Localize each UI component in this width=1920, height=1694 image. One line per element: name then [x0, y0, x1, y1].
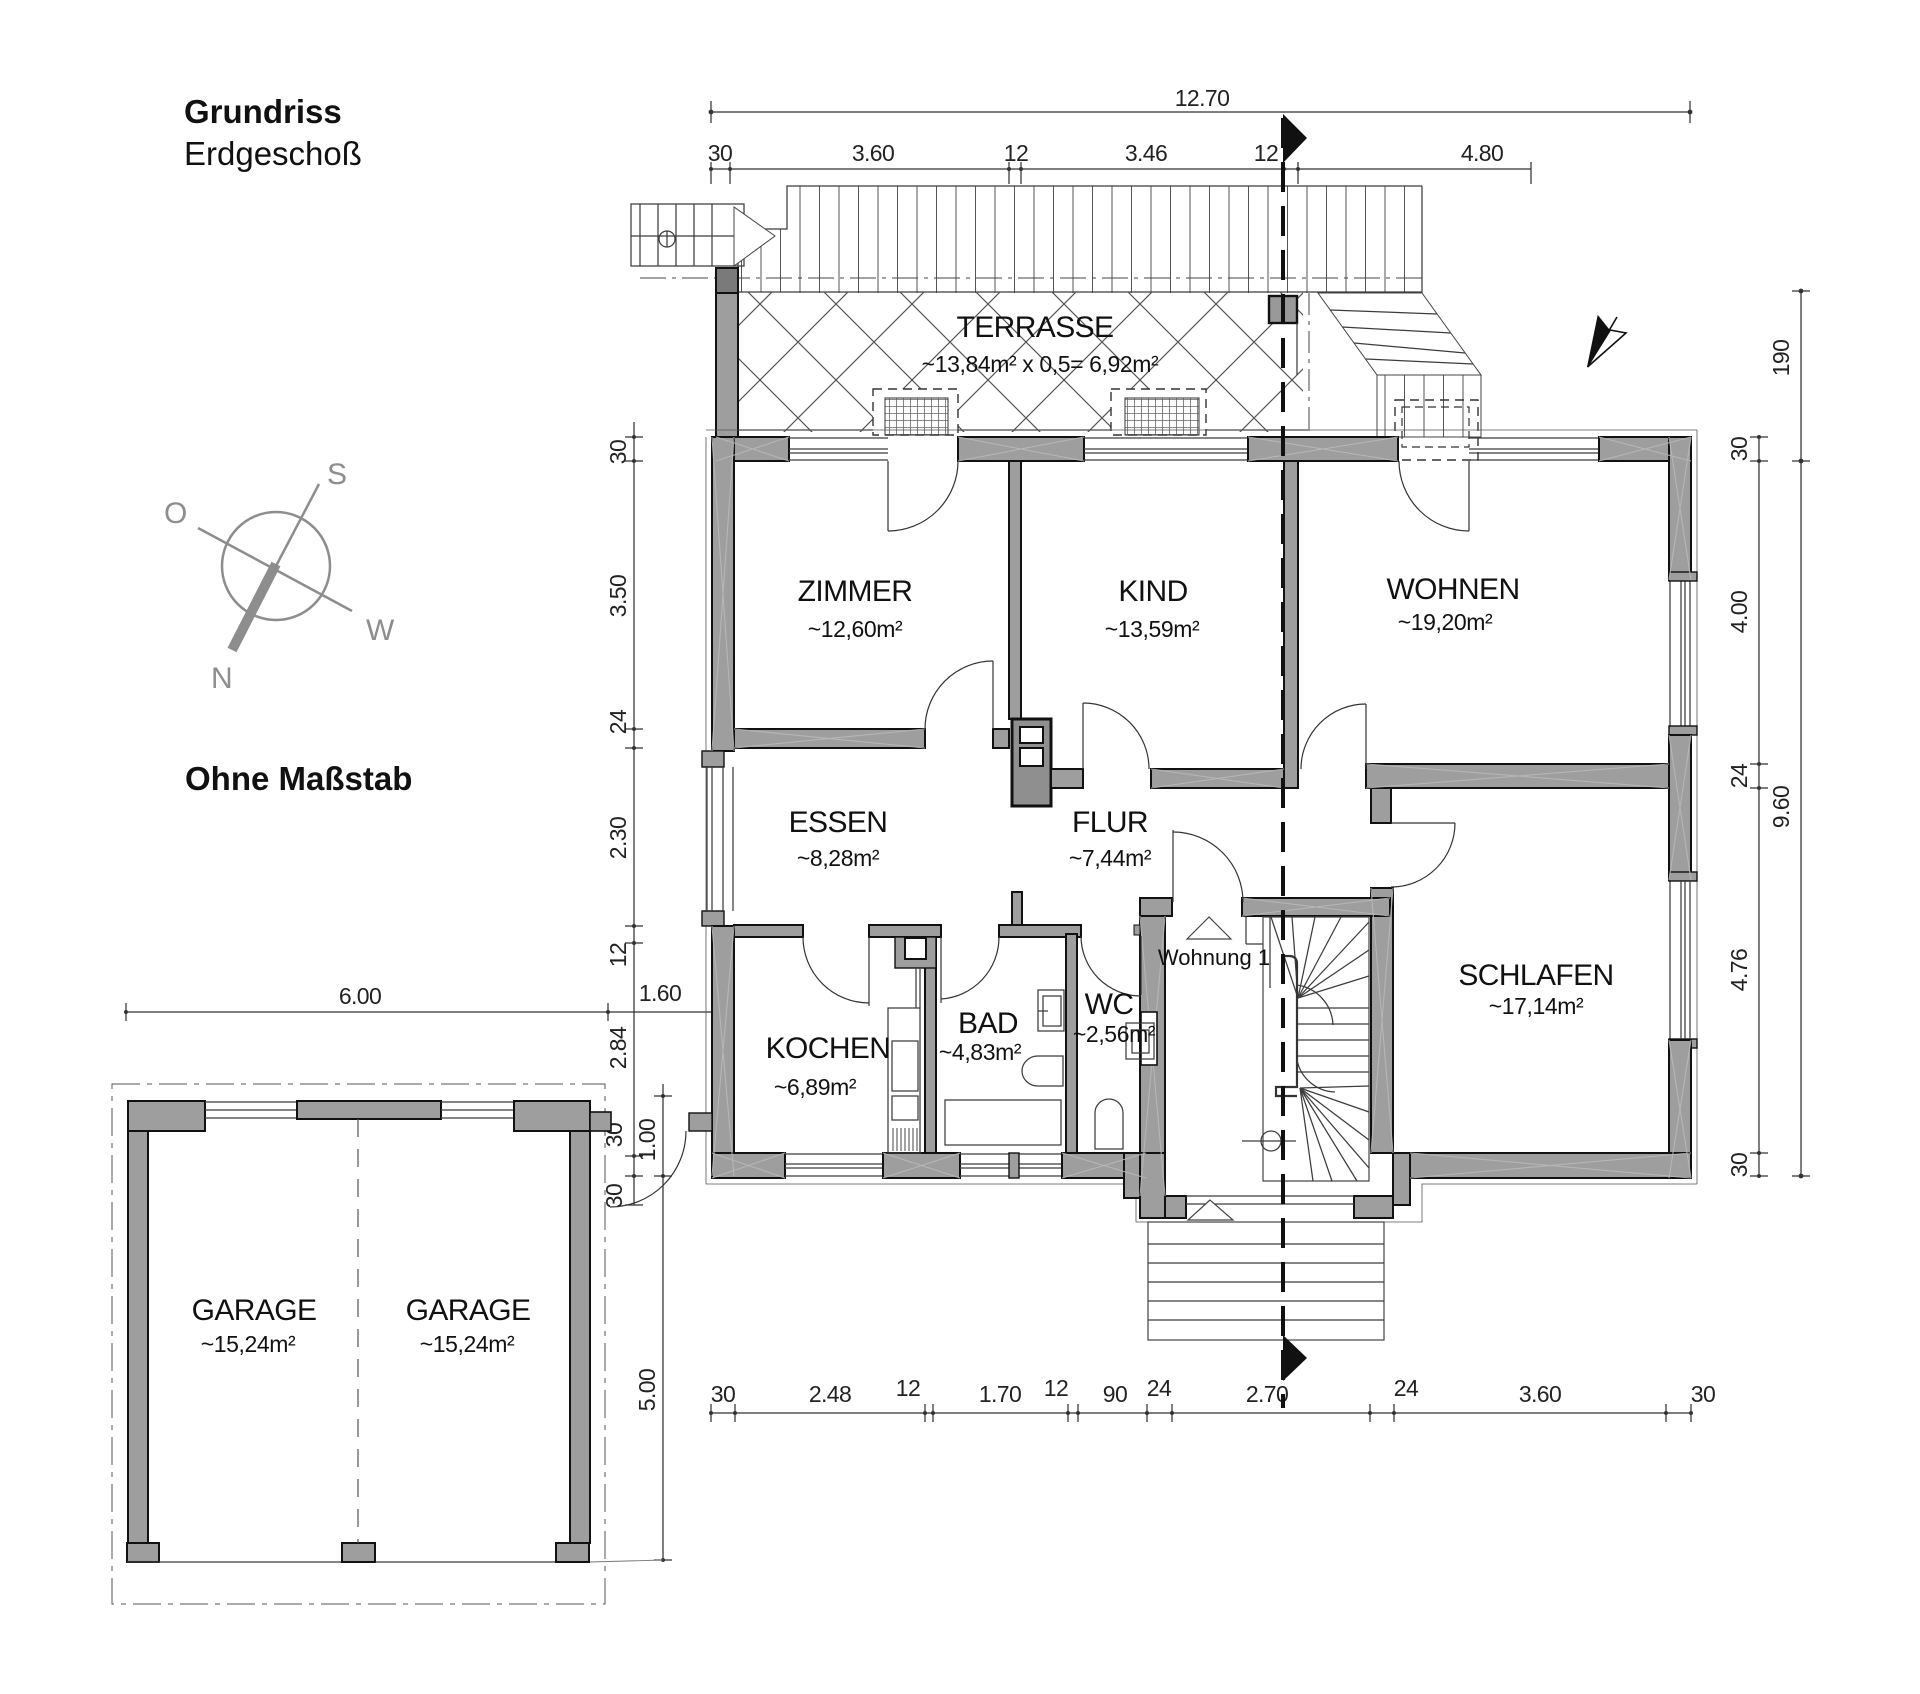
svg-text:30: 30 — [605, 440, 631, 464]
svg-text:~6,89m²: ~6,89m² — [774, 1074, 857, 1100]
svg-text:3.60: 3.60 — [1519, 1381, 1561, 1407]
svg-text:4.76: 4.76 — [1726, 949, 1752, 991]
svg-text:12: 12 — [1254, 140, 1278, 166]
svg-text:1.70: 1.70 — [979, 1381, 1021, 1407]
svg-text:5.00: 5.00 — [634, 1369, 660, 1411]
svg-text:TERRASSE: TERRASSE — [957, 311, 1114, 344]
svg-text:24: 24 — [1394, 1375, 1419, 1401]
svg-text:2.48: 2.48 — [809, 1381, 851, 1407]
svg-text:ZIMMER: ZIMMER — [798, 575, 913, 608]
svg-text:12.70: 12.70 — [1175, 85, 1230, 111]
svg-text:~2,56m²: ~2,56m² — [1073, 1021, 1156, 1047]
svg-text:~15,24m²: ~15,24m² — [420, 1331, 515, 1357]
svg-text:30: 30 — [708, 140, 732, 166]
svg-text:4.00: 4.00 — [1726, 591, 1752, 633]
svg-text:24: 24 — [1147, 1375, 1172, 1401]
svg-text:~17,14m²: ~17,14m² — [1489, 993, 1584, 1019]
svg-text:KOCHEN: KOCHEN — [766, 1032, 891, 1065]
svg-text:2.30: 2.30 — [605, 817, 631, 859]
svg-text:Grundriss: Grundriss — [184, 93, 342, 130]
svg-text:~13,59m²: ~13,59m² — [1105, 616, 1200, 642]
svg-text:30: 30 — [1726, 1153, 1752, 1177]
svg-text:2.84: 2.84 — [605, 1026, 631, 1069]
svg-text:12: 12 — [1044, 1375, 1068, 1401]
svg-text:~15,24m²: ~15,24m² — [201, 1331, 296, 1357]
svg-text:Erdgeschoß: Erdgeschoß — [184, 135, 362, 172]
svg-text:SCHLAFEN: SCHLAFEN — [1458, 959, 1613, 992]
svg-text:BAD: BAD — [958, 1007, 1018, 1040]
svg-text:30: 30 — [711, 1381, 735, 1407]
svg-text:Wohnung 1: Wohnung 1 — [1158, 945, 1270, 970]
svg-text:WOHNEN: WOHNEN — [1386, 573, 1519, 606]
svg-text:~19,20m²: ~19,20m² — [1398, 609, 1493, 635]
svg-text:~7,44m²: ~7,44m² — [1069, 845, 1152, 871]
svg-text:FLUR: FLUR — [1072, 806, 1148, 839]
svg-text:1.00: 1.00 — [634, 1119, 660, 1161]
svg-text:3.46: 3.46 — [1125, 140, 1167, 166]
svg-text:3.50: 3.50 — [605, 575, 631, 617]
svg-text:WC: WC — [1085, 988, 1134, 1021]
svg-text:4.80: 4.80 — [1461, 140, 1503, 166]
svg-text:N: N — [211, 662, 233, 695]
svg-text:O: O — [164, 497, 187, 530]
svg-text:12: 12 — [1004, 140, 1028, 166]
svg-text:6.00: 6.00 — [339, 983, 381, 1009]
svg-text:S: S — [327, 458, 347, 491]
svg-text:9.60: 9.60 — [1768, 786, 1794, 828]
svg-text:3.60: 3.60 — [852, 140, 894, 166]
svg-text:KIND: KIND — [1118, 575, 1187, 608]
svg-text:ESSEN: ESSEN — [789, 806, 888, 839]
svg-text:~13,84m² x 0,5= 6,92m²: ~13,84m² x 0,5= 6,92m² — [922, 351, 1159, 377]
svg-text:~12,60m²: ~12,60m² — [808, 616, 903, 642]
svg-text:1.60: 1.60 — [639, 980, 681, 1006]
svg-text:W: W — [366, 614, 395, 647]
svg-text:12: 12 — [605, 943, 631, 967]
svg-text:24: 24 — [605, 709, 631, 734]
svg-text:90: 90 — [1103, 1381, 1127, 1407]
svg-text:24: 24 — [1726, 763, 1752, 788]
svg-text:~8,28m²: ~8,28m² — [797, 845, 880, 871]
svg-text:Ohne Maßstab: Ohne Maßstab — [185, 760, 412, 797]
svg-text:12: 12 — [896, 1375, 920, 1401]
svg-text:~4,83m²: ~4,83m² — [939, 1039, 1022, 1065]
svg-text:GARAGE: GARAGE — [406, 1294, 531, 1327]
svg-text:GARAGE: GARAGE — [192, 1294, 317, 1327]
svg-text:30: 30 — [1726, 437, 1752, 461]
svg-text:190: 190 — [1768, 340, 1794, 377]
svg-text:30: 30 — [1691, 1381, 1715, 1407]
